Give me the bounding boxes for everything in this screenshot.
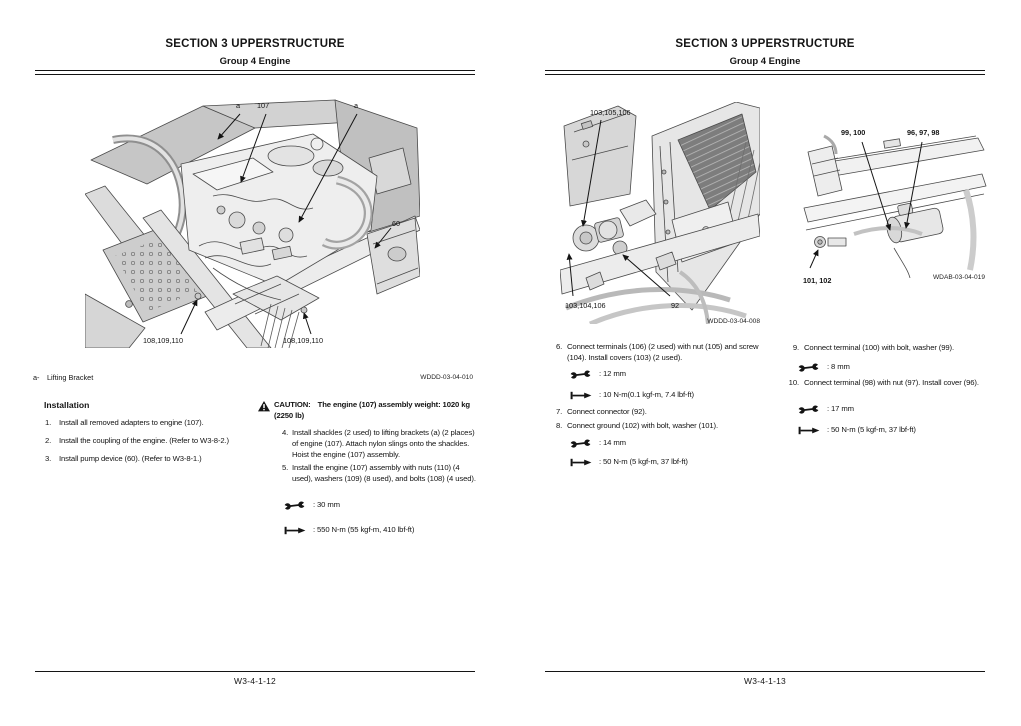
header-rule (545, 70, 985, 75)
wrench-size-spec: : 12 mm (570, 369, 626, 380)
page-number: W3-4-1-13 (545, 676, 985, 686)
figure-label-60: 60 (392, 219, 400, 228)
spec-text: : 17 mm (827, 404, 854, 415)
step-number: 6. (556, 342, 567, 364)
step-10: 10. Connect terminal (98) with nut (97).… (782, 378, 987, 389)
step-text: Connect terminal (100) with bolt, washer… (804, 343, 990, 354)
figure-label-101-102: 101, 102 (803, 276, 831, 285)
page-number: W3-4-1-12 (35, 676, 475, 686)
step-6: 6. Connect terminals (106) (2 used) with… (556, 342, 768, 364)
footer-rule (35, 671, 475, 672)
spec-text: : 50 N-m (5 kgf-m, 37 lbf-ft) (599, 457, 688, 468)
figure-legend: a-Lifting Bracket (33, 373, 93, 382)
figure-label-bolts-right: 108,109,110 (283, 336, 323, 345)
warning-icon (258, 400, 274, 422)
wrench-icon (570, 439, 592, 448)
installation-heading: Installation (44, 400, 89, 410)
torque-spec: : 10 N-m(0.1 kgf-m, 7.4 lbf-ft) (570, 390, 694, 401)
spec-text: : 14 mm (599, 438, 626, 449)
step-number: 1. (45, 418, 59, 429)
wrench-icon (570, 370, 592, 379)
step-text: Connect ground (102) with bolt, washer (… (567, 421, 768, 432)
caution-label: CAUTION: (274, 400, 311, 409)
torque-wrench-icon (798, 426, 820, 435)
spec-text: : 10 N-m(0.1 kgf-m, 7.4 lbf-ft) (599, 390, 694, 401)
step-text: Install all removed adapters to engine (… (59, 418, 255, 429)
figure-label-103-105-106: 103,105,106 (590, 108, 631, 117)
step-number: 3. (45, 454, 59, 465)
spec-text: : 30 mm (313, 500, 340, 511)
step-9: 9. Connect terminal (100) with bolt, was… (782, 343, 990, 354)
step-text: Install the coupling of the engine. (Ref… (59, 436, 257, 447)
figure-label-107: 107 (257, 101, 269, 110)
figure-caption: WDAB-03-04-019 (885, 274, 985, 281)
page-left: SECTION 3 UPPERSTRUCTURE Group 4 Engine (0, 0, 510, 726)
spec-text: : 550 N-m (55 kgf-m, 410 lbf-ft) (313, 525, 414, 536)
step-text: Install pump device (60). (Refer to W3-8… (59, 454, 255, 465)
step-number: 2. (45, 436, 59, 447)
page-title: SECTION 3 UPPERSTRUCTURE (545, 38, 985, 50)
caution-note: CAUTION:The engine (107) assembly weight… (258, 400, 472, 422)
wrench-icon (798, 405, 820, 414)
step-text: Connect connector (92). (567, 407, 768, 418)
torque-wrench-icon (284, 526, 306, 535)
step-8: 8. Connect ground (102) with bolt, washe… (556, 421, 768, 432)
figure-caption: WDDD-03-04-008 (660, 318, 760, 325)
page-subtitle: Group 4 Engine (35, 56, 475, 67)
step-text: Connect terminals (106) (2 used) with nu… (567, 342, 768, 364)
engine-terminals-figure (560, 102, 760, 324)
torque-wrench-icon (570, 391, 592, 400)
figure-label-92: 92 (671, 301, 679, 310)
step-number: 7. (556, 407, 567, 418)
torque-wrench-icon (570, 458, 592, 467)
figure-label-bolts-left: 108,109,110 (143, 336, 183, 345)
figure-caption: WDDD-03-04-010 (373, 374, 473, 381)
figure-label-a-top: a (236, 101, 240, 110)
manual-spread: SECTION 3 UPPERSTRUCTURE Group 4 Engine (0, 0, 1021, 726)
step-number: 4. (282, 428, 292, 461)
wrench-icon (798, 363, 820, 372)
step-7: 7. Connect connector (92). (556, 407, 768, 418)
footer-rule (545, 671, 985, 672)
torque-spec: : 550 N-m (55 kgf-m, 410 lbf-ft) (284, 525, 414, 536)
torque-spec: : 50 N-m (5 kgf-m, 37 lbf-ft) (798, 425, 916, 436)
engine-starter-figure (798, 130, 988, 278)
page-title: SECTION 3 UPPERSTRUCTURE (35, 38, 475, 50)
page-subtitle: Group 4 Engine (545, 56, 985, 67)
step-text: Install the engine (107) assembly with n… (292, 463, 482, 485)
figure-label-103-104-106: 103,104,106 (565, 301, 606, 310)
wrench-icon (284, 501, 306, 510)
engine-installation-figure (85, 98, 420, 348)
step-number: 10. (782, 378, 804, 389)
step-text: Connect terminal (98) with nut (97). Ins… (804, 378, 987, 389)
figure-label-99-100: 99, 100 (841, 128, 865, 137)
wrench-size-spec: : 30 mm (284, 500, 340, 511)
step-number: 9. (782, 343, 804, 354)
step-1: 1. Install all removed adapters to engin… (45, 418, 255, 429)
figure-label-96-97-98: 96, 97, 98 (907, 128, 939, 137)
spec-text: : 50 N-m (5 kgf-m, 37 lbf-ft) (827, 425, 916, 436)
step-4: 4. Install shackles (2 used) to lifting … (282, 428, 482, 461)
wrench-size-spec: : 8 mm (798, 362, 850, 373)
page-right: SECTION 3 UPPERSTRUCTURE Group 4 Engine (510, 0, 1021, 726)
wrench-size-spec: : 17 mm (798, 404, 854, 415)
spec-text: : 8 mm (827, 362, 850, 373)
step-text: Install shackles (2 used) to lifting bra… (292, 428, 482, 461)
figure-label-a-right: a (354, 101, 358, 110)
step-3: 3. Install pump device (60). (Refer to W… (45, 454, 255, 465)
legend-value: Lifting Bracket (47, 373, 93, 382)
step-5: 5. Install the engine (107) assembly wit… (282, 463, 482, 485)
spec-text: : 12 mm (599, 369, 626, 380)
step-number: 8. (556, 421, 567, 432)
header-rule (35, 70, 475, 75)
torque-spec: : 50 N-m (5 kgf-m, 37 lbf-ft) (570, 457, 688, 468)
step-2: 2. Install the coupling of the engine. (… (45, 436, 257, 447)
wrench-size-spec: : 14 mm (570, 438, 626, 449)
legend-key: a- (33, 373, 47, 382)
step-number: 5. (282, 463, 292, 485)
